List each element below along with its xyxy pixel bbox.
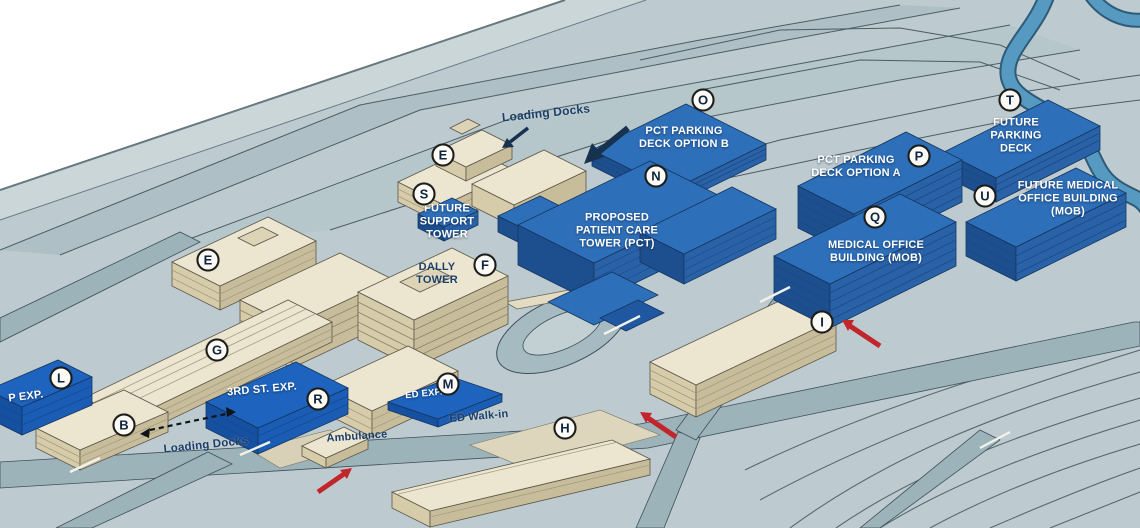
marker-r: R — [307, 388, 330, 411]
marker-e-upper: E — [432, 144, 455, 167]
marker-q: Q — [864, 206, 887, 229]
marker-f: F — [474, 254, 497, 277]
marker-g: G — [206, 339, 229, 362]
marker-u: U — [974, 185, 997, 208]
marker-s: S — [413, 183, 436, 206]
marker-m: M — [437, 373, 460, 396]
campus-site-plan-map: Loading Docks PCT PARKING DECK OPTION B … — [0, 0, 1140, 528]
marker-e-lower: E — [197, 249, 220, 272]
marker-l: L — [50, 367, 73, 390]
marker-n: N — [645, 165, 668, 188]
marker-p: P — [908, 145, 931, 168]
marker-i: I — [811, 311, 834, 334]
marker-b: B — [113, 414, 136, 437]
marker-o: O — [692, 89, 715, 112]
markers-layer: E S O N P T U Q E F G L B R M H I — [0, 0, 1140, 528]
marker-t: T — [999, 89, 1022, 112]
marker-h: H — [554, 417, 577, 440]
